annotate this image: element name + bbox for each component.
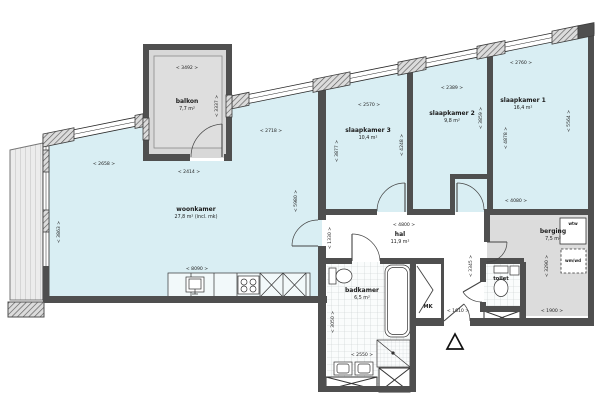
- room-area-berging: 7,5 m²: [545, 236, 561, 242]
- room-area-slaapkamer2: 9,8 m²: [444, 118, 460, 124]
- dim-sk3-width: < 2570 >: [358, 102, 380, 108]
- dim-sk1-width: < 2760 >: [510, 60, 532, 66]
- dim-woonkamer-right: < 5980 >: [293, 190, 299, 212]
- dim-balkon-width-top: < 3492 >: [176, 65, 198, 71]
- dim-sk3-right: < 4248 >: [399, 134, 405, 156]
- room-area-balkon: 7,7 m²: [179, 106, 195, 112]
- floorplan-page: balkon 7,7 m² woonkamer 27,8 m² (incl. m…: [0, 0, 600, 400]
- room-label-slaapkamer3: slaapkamer 3: [345, 127, 391, 134]
- dim-balkon-width-bottom: < 2414 >: [178, 169, 200, 175]
- floorplan-svg: balkon 7,7 m² woonkamer 27,8 m² (incl. m…: [0, 0, 600, 400]
- dim-sk1-right: < 5564 >: [566, 110, 572, 132]
- dim-woonkamer-top-left: < 2658 >: [93, 161, 115, 167]
- room-label-meterkast: MK: [423, 304, 433, 310]
- loggia-floor: [10, 143, 43, 300]
- dim-hal-width: < 4800 >: [393, 222, 415, 228]
- room-label-slaapkamer2: slaapkamer 2: [429, 110, 475, 117]
- room-area-badkamer: 6,5 m²: [354, 295, 370, 301]
- room-label-berging: berging: [540, 228, 566, 235]
- dim-hal-left: < 1330 >: [327, 227, 333, 249]
- dim-sk3-left: < 3877 >: [334, 140, 340, 162]
- kitchen-stove-icon: [238, 276, 259, 294]
- dim-hal-corridor: < 1610 >: [447, 308, 469, 314]
- dim-woonkamer-left: < 3863 >: [56, 221, 62, 243]
- dim-berging-right: < 3290 >: [544, 255, 550, 277]
- north-arrow-icon: [447, 334, 463, 349]
- room-label-hal: hal: [395, 231, 405, 238]
- kitchen-block: [168, 273, 310, 297]
- room-label-slaapkamer1: slaapkamer 1: [500, 97, 546, 104]
- dim-hal-right: < 3345 >: [468, 255, 474, 277]
- room-area-hal: 11,9 m²: [391, 239, 410, 245]
- room-label-badkamer: badkamer: [345, 287, 379, 294]
- dim-sk1-bottom: < 4080 >: [505, 198, 527, 204]
- room-label-balkon: balkon: [176, 98, 199, 105]
- bathtub-icon: [385, 265, 410, 337]
- room-label-woonkamer: woonkamer: [176, 206, 215, 213]
- wmwd-label: wm/wd: [565, 258, 581, 263]
- dim-balkon-depth-right: < 3337 >: [214, 95, 220, 117]
- room-area-woonkamer: 27,8 m² (incl. mk): [175, 214, 218, 220]
- dim-badkamer-width: < 2550 >: [351, 352, 373, 358]
- room-area-slaapkamer1: 16,4 m²: [514, 105, 533, 111]
- dim-woonkamer-bottom: < 8090 >: [186, 266, 208, 272]
- dim-sk2-right: < 3859 >: [478, 107, 484, 129]
- room-area-slaapkamer3: 10,4 m²: [359, 135, 378, 141]
- dim-sk2-width: < 2389 >: [441, 85, 463, 91]
- wc-icon: [329, 268, 352, 284]
- dim-sk1-left: < 4878 >: [503, 127, 509, 149]
- dim-berging-bottom: < 1900 >: [541, 308, 563, 314]
- wtw-label: wtw: [568, 221, 578, 226]
- room-label-toilet: toilet: [493, 276, 509, 282]
- dim-woonkamer-top-right: < 2718 >: [260, 128, 282, 134]
- toilet-basin-icon: [510, 266, 519, 275]
- slaapkamer1-floor: [490, 34, 588, 210]
- kitchen-sink-icon: [186, 277, 204, 294]
- shower-icon: [377, 340, 410, 367]
- dim-badkamer-left: < 3050 >: [330, 311, 336, 333]
